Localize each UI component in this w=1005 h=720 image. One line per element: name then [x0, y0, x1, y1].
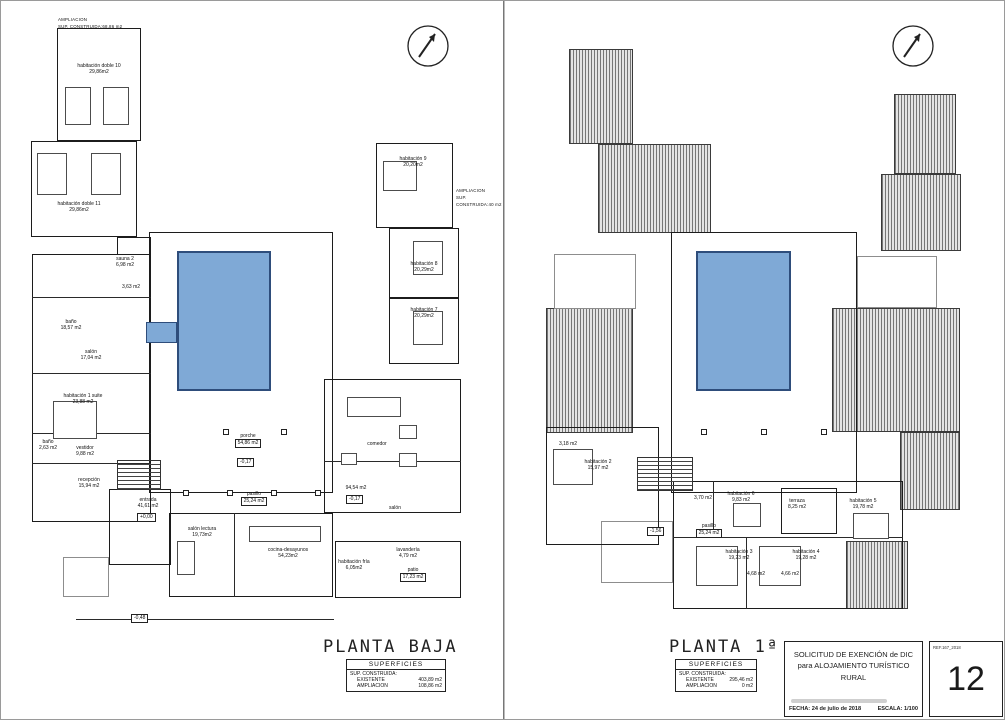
room-area: 20,20m2 [378, 162, 448, 168]
room-area: 6,05m2 [331, 565, 377, 571]
room-area: 19,73m2 [171, 532, 233, 538]
room-label: 94,54 m2 [334, 485, 378, 491]
partition-line [32, 373, 151, 374]
room-label: comedor [351, 441, 403, 447]
pool-steps [146, 322, 177, 343]
room-label: habitación doble 1129,86m2 [41, 201, 117, 214]
room-area: 20,29m2 [389, 313, 459, 319]
room-name: comedor [351, 441, 403, 447]
note-line: AMPLIACION [456, 187, 504, 194]
north-arrow-icon [890, 23, 936, 69]
row-name: AMPLIACION [357, 683, 388, 689]
room-label: 4,68 m2 [739, 571, 773, 577]
furniture-bed [91, 153, 121, 195]
sheet-ref: REF.167_2018 [933, 645, 961, 650]
room-area: 20,29m2 [389, 267, 459, 273]
room-area: 94,54 m2 [334, 485, 378, 491]
row-value: 0 m2 [742, 683, 753, 689]
room-area: 3,63 m2 [111, 284, 151, 290]
column [761, 429, 767, 435]
room-label: habitación 519,78 m2 [833, 498, 893, 511]
fecha-field: FECHA: 24 de julio de 2018 [789, 706, 861, 712]
project-title-line2: para ALOJAMIENTO TURÍSTICO RURAL [785, 660, 922, 683]
furniture-bed [65, 87, 91, 125]
room-label: habitación 1 suite23,88 m2 [43, 393, 123, 406]
room-label: salón [373, 505, 417, 511]
furniture-table [341, 453, 357, 465]
room-label: 3,63 m2 [111, 284, 151, 290]
page-number-box: REF.167_2018 12 [929, 641, 1003, 717]
column [701, 429, 707, 435]
title-block: SOLICITUD DE EXENCIÓN de DIC para ALOJAM… [784, 641, 923, 717]
room-area: 19,23 m2 [709, 555, 769, 561]
partition-line [234, 513, 235, 597]
entrance-stairs [117, 460, 161, 490]
stairs [637, 457, 693, 491]
level-marker: -0,17 [237, 458, 254, 467]
row-value: 108,86 m2 [418, 683, 442, 689]
room-area: 6,98 m2 [99, 262, 151, 268]
room-area: 18,57 m2 [41, 325, 101, 331]
roof-hatch [894, 94, 956, 174]
room-area: 25,24 m2 [241, 497, 268, 505]
drawing-canvas: AMPLIACION SUP. CONSTRUIDA:68,86 m2 AMPL… [0, 0, 1005, 720]
escala-value: 1/100 [904, 706, 918, 712]
room-label: porche54,86 m2 [221, 433, 275, 448]
room-area: 54,86 m2 [235, 439, 262, 447]
note-line: SUP. CONSTRUIDA:40 m2 [456, 194, 504, 208]
roof-hatch [900, 432, 960, 510]
fecha-label: FECHA: [789, 706, 810, 712]
room-label: habitación 920,20m2 [378, 156, 448, 169]
superficies-row: AMPLIACION108,86 m2 [350, 683, 442, 689]
annex-link-outline [117, 237, 151, 255]
project-title-line1: SOLICITUD DE EXENCIÓN de DIC [785, 649, 922, 660]
ampliacion-note-top: AMPLIACION SUP. CONSTRUIDA:68,86 m2 [58, 16, 122, 30]
column [281, 429, 287, 435]
superficies-title: SUPERFICIES [347, 660, 445, 670]
plan-title-baja: PLANTA BAJA [323, 637, 458, 657]
escala-field: ESCALA: 1/100 [878, 706, 918, 712]
room-label: salón17,04 m2 [61, 349, 121, 362]
room-label: salón lectura19,73m2 [171, 526, 233, 539]
room-label: 4,66 m2 [773, 571, 807, 577]
room-area: 15,94 m2 [59, 483, 119, 489]
level-marker: -0,48 [131, 614, 148, 623]
row-name: AMPLIACION [686, 683, 717, 689]
note-line: AMPLIACION [58, 16, 122, 23]
plan-title-primera: PLANTA 1ª [669, 637, 779, 657]
furniture-dining-table [347, 397, 401, 417]
terrace-edge-line [76, 619, 334, 620]
ampliacion-note-right: AMPLIACION SUP. CONSTRUIDA:40 m2 [456, 187, 504, 208]
page-number: 12 [930, 660, 1002, 699]
room-label: pasillo25,24 m2 [227, 491, 281, 506]
room-area: 3,18 m2 [550, 441, 586, 447]
furniture-bed [37, 153, 67, 195]
column [315, 490, 321, 496]
terrace-outline [63, 557, 109, 597]
room-label: cocina-desayunos54,23m2 [249, 547, 327, 560]
superficies-title: SUPERFICIES [676, 660, 756, 670]
room-area: 29,86m2 [61, 69, 137, 75]
room-label: habitación 69,83 m2 [713, 491, 769, 504]
level-marker: -0,17 [346, 495, 363, 504]
room-label: habitación doble 1029,86m2 [61, 63, 137, 76]
room-label: sauna 26,98 m2 [99, 256, 151, 269]
illegible-author-line [791, 699, 887, 703]
room-label: lavandería4,79 m2 [383, 547, 433, 560]
room-area: 17,04 m2 [61, 355, 121, 361]
room-area: 17,23 m2 [400, 573, 427, 581]
room-label: patio17,23 m2 [391, 567, 435, 582]
furniture-kitchen-table [249, 526, 321, 542]
superficies-row: AMPLIACION0 m2 [679, 683, 753, 689]
north-arrow-icon [405, 23, 451, 69]
room-area: 19,78 m2 [833, 504, 893, 510]
level-marker: +0,00 [137, 513, 156, 522]
room-label: habitación 820,29m2 [389, 261, 459, 274]
escala-label: ESCALA: [878, 706, 903, 712]
room-label: entrada41,61 m2 [119, 497, 177, 510]
room-area: 9,83 m2 [713, 497, 769, 503]
roof-hatch [598, 144, 711, 233]
furniture-bed [853, 513, 889, 539]
partition-line [32, 297, 151, 298]
room-area: 54,23m2 [249, 553, 327, 559]
fecha-value: 24 de julio de 2018 [812, 706, 861, 712]
room-label: vestidor9,88 m2 [59, 445, 111, 458]
furniture-bed [733, 503, 761, 527]
room-area: 9,88 m2 [59, 451, 111, 457]
lower-floor-outline [857, 256, 937, 308]
furniture-bed [103, 87, 129, 125]
level-marker: -1,56 [647, 527, 664, 536]
column [183, 490, 189, 496]
furniture-table [399, 425, 417, 439]
room-label: habitación 720,29m2 [389, 307, 459, 320]
room-label: habitación 215,97 m2 [566, 459, 630, 472]
room-area: 4,66 m2 [773, 571, 807, 577]
roof-hatch [881, 174, 961, 251]
room-area: 15,97 m2 [566, 465, 630, 471]
room-label: recepción15,94 m2 [59, 477, 119, 490]
superficies-table: SUPERFICIES SUP. CONSTRUIDA: EXISTENTE29… [675, 659, 757, 692]
superficies-table: SUPERFICIES SUP. CONSTRUIDA: EXISTENTE40… [346, 659, 446, 692]
room-area: 4,68 m2 [739, 571, 773, 577]
room-name: salón [373, 505, 417, 511]
roof-hatch [569, 49, 633, 144]
room-label: baño18,57 m2 [41, 319, 101, 332]
roof-hatch [546, 308, 633, 433]
room-area: 23,88 m2 [43, 399, 123, 405]
room-area: 29,86m2 [41, 207, 117, 213]
room-area: 8,25 m2 [771, 504, 823, 510]
room-area: 4,79 m2 [383, 553, 433, 559]
room-area: 25,24 m2 [696, 529, 723, 537]
room-label: pasillo25,24 m2 [683, 523, 735, 538]
room-area: 41,61 m2 [119, 503, 177, 509]
pool [696, 251, 791, 391]
furniture-table [399, 453, 417, 467]
terraza-outline [781, 488, 837, 534]
note-line: SUP. CONSTRUIDA:68,86 m2 [58, 23, 122, 30]
room-label: habitación 319,23 m2 [709, 549, 769, 562]
furniture-bed [53, 401, 97, 439]
sheet-divider [503, 1, 505, 720]
room-area: 19,28 m2 [776, 555, 836, 561]
lower-floor-outline [554, 254, 636, 309]
furniture-sofa [177, 541, 195, 575]
room-label: habitación 419,28 m2 [776, 549, 836, 562]
room-label: 3,18 m2 [550, 441, 586, 447]
room-label: habitación fría6,05m2 [331, 559, 377, 572]
column [821, 429, 827, 435]
pool [177, 251, 271, 391]
room-label: terraza8,25 m2 [771, 498, 823, 511]
